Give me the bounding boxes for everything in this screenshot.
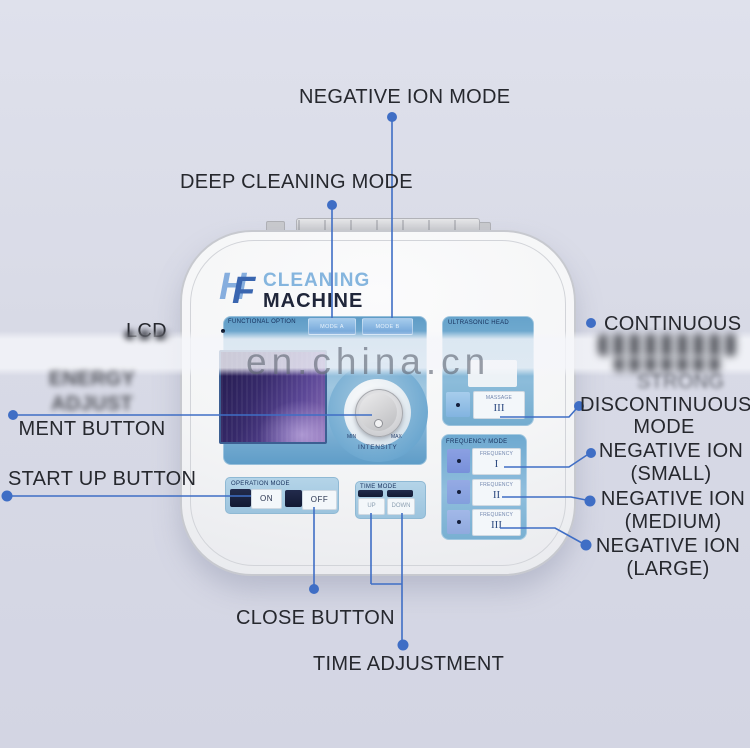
label-discontinuous-line2: MODE [580,416,748,438]
label-neg-medium-line2: (MEDIUM) [599,511,747,534]
label-discontinuous-line1: DISCONTINUOUS [580,394,748,416]
label-time-adjustment: TIME ADJUSTMENT [313,653,504,676]
label-negative-ion-large: NEGATIVE ION (LARGE) [594,535,742,581]
label-neg-small-line1: NEGATIVE ION [597,440,745,463]
label-energy-adjustment: ENERGY ADJUST MENT BUTTON [12,367,172,442]
label-start-up-button: START UP BUTTON [8,468,196,491]
callout-dot [586,318,596,328]
label-negative-ion-medium: NEGATIVE ION (MEDIUM) [599,488,747,534]
label-strong: STRONG [637,371,724,394]
label-energy-line1: ENERGY ADJUST [12,367,172,417]
label-continuous: CONTINUOUS [604,313,741,336]
callout-dot [309,584,319,594]
label-discontinuous-mode: DISCONTINUOUS MODE [580,394,748,438]
line-discontinuous [500,408,577,417]
callout-dot [585,496,596,507]
line-neg-large [500,528,582,543]
line-neg-medium [502,497,586,500]
label-energy-line2: MENT BUTTON [12,417,172,442]
label-neg-large-line1: NEGATIVE ION [594,535,742,558]
product-diagram: H F CLEANING MACHINE FUNCTIONAL OPTION M… [0,0,750,748]
label-deep-cleaning-mode: DEEP CLEANING MODE [180,171,380,194]
callout-dot [581,540,592,551]
callout-dot [387,112,397,122]
callout-dot [327,200,337,210]
label-neg-large-line2: (LARGE) [594,558,742,581]
callout-dot [2,491,13,502]
label-close-button: CLOSE BUTTON [236,607,395,630]
label-negative-ion-mode: NEGATIVE ION MODE [299,86,499,109]
label-neg-small-line2: (SMALL) [597,463,745,486]
callout-dot [398,640,409,651]
callout-dot [586,448,596,458]
line-neg-small [504,455,587,467]
label-negative-ion-small: NEGATIVE ION (SMALL) [597,440,745,486]
label-neg-medium-line1: NEGATIVE ION [599,488,747,511]
